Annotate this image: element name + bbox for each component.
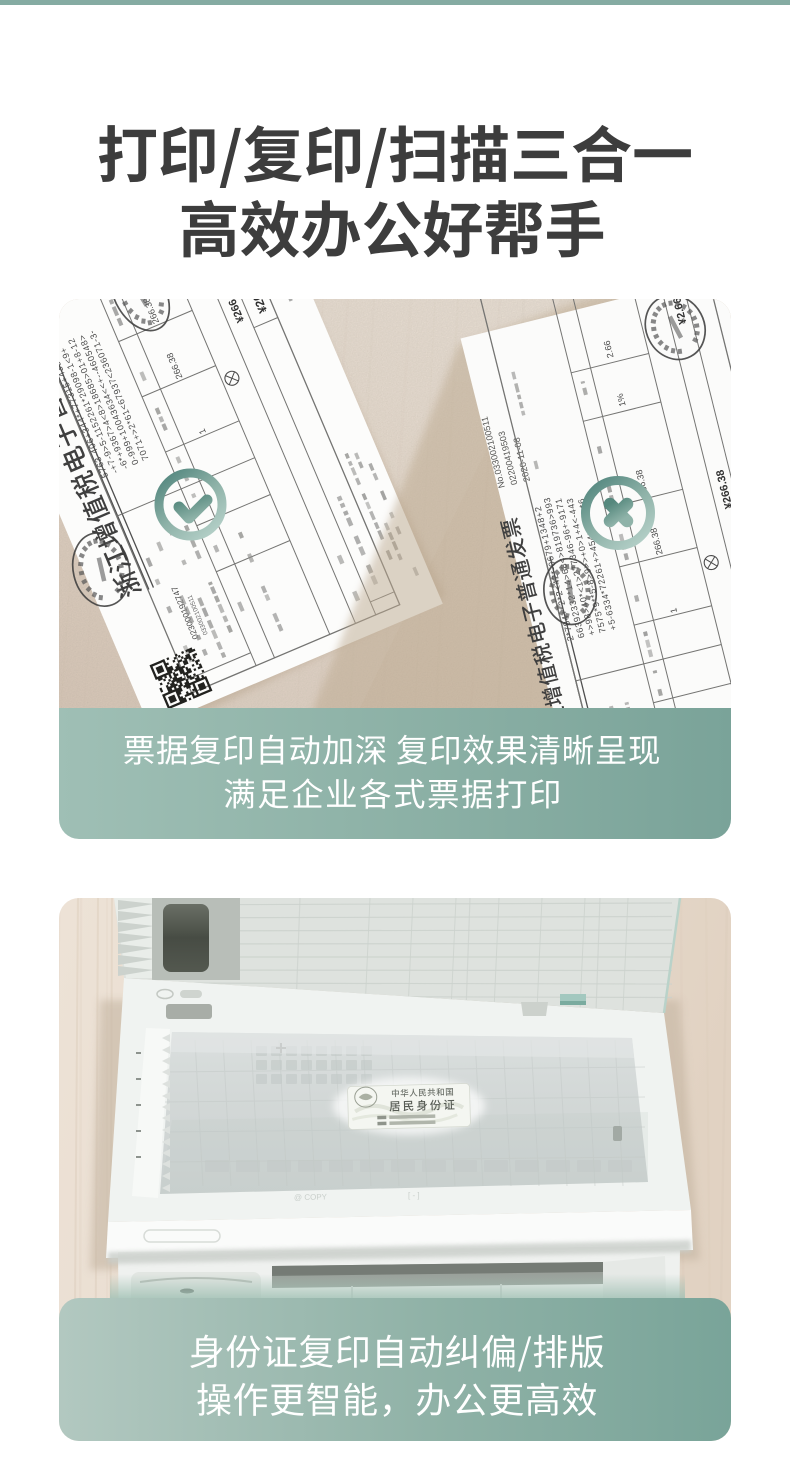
svg-text:No.033002100511: No.033002100511 bbox=[0, 268, 18, 339]
svg-text:¥269.00: ¥269.00 bbox=[736, 459, 760, 505]
svg-text:@ COPY: @ COPY bbox=[294, 1192, 328, 1202]
svg-text:02200419503: 02200419503 bbox=[0, 280, 30, 335]
svg-text:2020-11-08: 2020-11-08 bbox=[15, 283, 42, 329]
svg-text:1%: 1% bbox=[110, 224, 124, 240]
svg-text:[ - ]: [ - ] bbox=[408, 1191, 420, 1200]
